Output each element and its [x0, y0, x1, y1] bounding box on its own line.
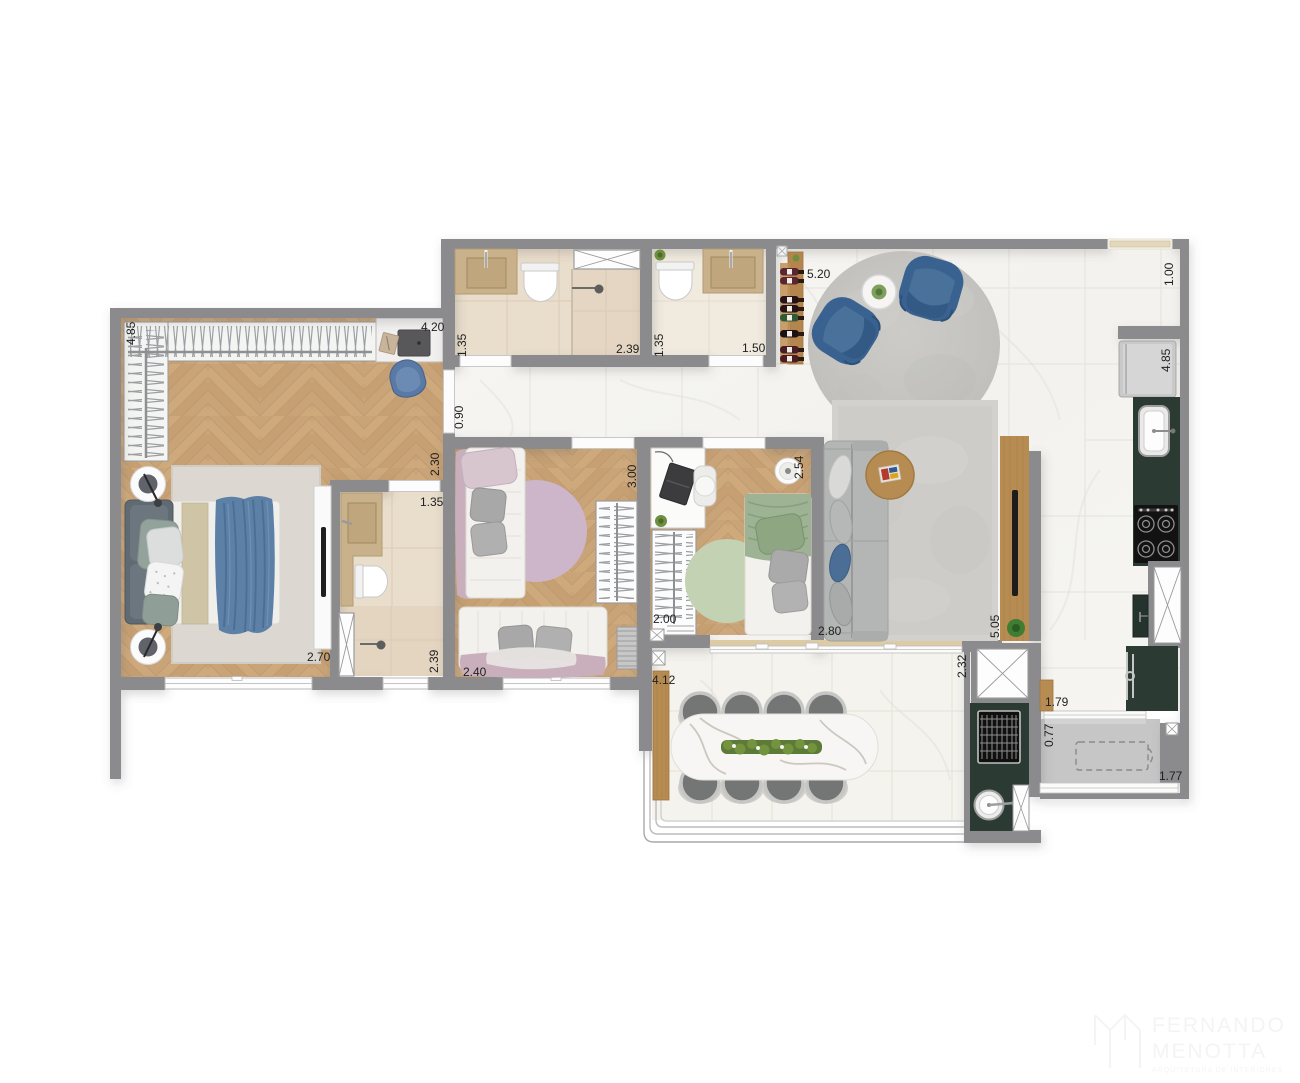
svg-text:1.35: 1.35: [420, 495, 444, 509]
svg-text:1.77: 1.77: [1159, 769, 1183, 783]
svg-text:4.20: 4.20: [421, 320, 445, 334]
svg-text:2.39: 2.39: [427, 649, 441, 673]
svg-text:5.20: 5.20: [807, 267, 831, 281]
svg-text:1.00: 1.00: [1162, 262, 1176, 286]
svg-text:0.77: 0.77: [1042, 723, 1056, 747]
svg-text:1.35: 1.35: [652, 333, 666, 357]
svg-text:FERNANDO: FERNANDO: [1152, 1014, 1286, 1037]
svg-text:2.54: 2.54: [792, 455, 806, 479]
svg-text:2.00: 2.00: [653, 612, 677, 626]
svg-text:1.35: 1.35: [455, 333, 469, 357]
svg-text:4.12: 4.12: [652, 673, 676, 687]
svg-text:0.90: 0.90: [452, 405, 466, 429]
svg-text:3.00: 3.00: [625, 464, 639, 488]
svg-text:2.40: 2.40: [463, 665, 487, 679]
svg-text:2.30: 2.30: [428, 452, 442, 476]
svg-text:1.79: 1.79: [1045, 695, 1069, 709]
svg-text:MENOTTA: MENOTTA: [1152, 1040, 1267, 1063]
svg-text:4.85: 4.85: [124, 321, 138, 345]
svg-text:5.05: 5.05: [988, 614, 1002, 638]
svg-text:2.70: 2.70: [307, 650, 331, 664]
svg-text:4.85: 4.85: [1159, 348, 1173, 372]
svg-text:1.50: 1.50: [742, 341, 766, 355]
svg-text:2.80: 2.80: [818, 624, 842, 638]
svg-text:ARQUITETURA DE INTERIORES: ARQUITETURA DE INTERIORES: [1152, 1067, 1283, 1074]
svg-text:2.32: 2.32: [955, 654, 969, 678]
svg-text:2.39: 2.39: [616, 342, 640, 356]
